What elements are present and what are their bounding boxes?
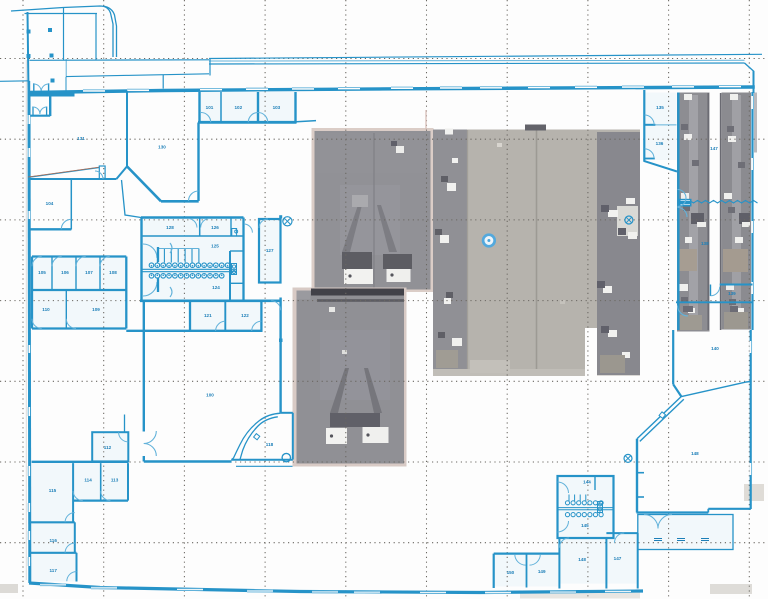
svg-text:136: 136 — [656, 141, 664, 146]
svg-text:122: 122 — [241, 313, 249, 318]
svg-text:105: 105 — [38, 270, 46, 275]
svg-text:147: 147 — [710, 146, 718, 151]
svg-text:106: 106 — [61, 270, 69, 275]
svg-text:150: 150 — [507, 570, 515, 575]
svg-text:148: 148 — [691, 451, 699, 456]
svg-text:104: 104 — [46, 201, 54, 206]
svg-text:144: 144 — [583, 480, 591, 485]
svg-text:147: 147 — [614, 556, 622, 561]
svg-text:118: 118 — [266, 442, 274, 447]
svg-text:112: 112 — [104, 445, 112, 450]
svg-text:148: 148 — [578, 557, 586, 562]
svg-text:108: 108 — [109, 270, 117, 275]
svg-text:125: 125 — [211, 244, 219, 249]
svg-text:140: 140 — [711, 346, 719, 351]
svg-text:127: 127 — [266, 248, 274, 253]
svg-text:110: 110 — [42, 307, 50, 312]
svg-text:126: 126 — [211, 225, 219, 230]
svg-text:135: 135 — [656, 105, 664, 110]
svg-text:131: 131 — [77, 136, 85, 141]
svg-text:121: 121 — [204, 313, 212, 318]
svg-text:107: 107 — [85, 270, 93, 275]
svg-text:130: 130 — [158, 145, 166, 150]
svg-text:114: 114 — [84, 478, 92, 483]
svg-text:116: 116 — [49, 538, 57, 543]
svg-text:109: 109 — [92, 307, 100, 312]
svg-text:149: 149 — [538, 569, 546, 574]
svg-text:100: 100 — [206, 393, 214, 398]
svg-text:139: 139 — [728, 291, 736, 296]
svg-text:138: 138 — [701, 241, 709, 246]
svg-text:113: 113 — [111, 478, 119, 483]
svg-text:101: 101 — [206, 105, 214, 110]
svg-text:102: 102 — [234, 105, 242, 110]
svg-text:103: 103 — [273, 105, 281, 110]
svg-text:145: 145 — [581, 523, 589, 528]
svg-text:117: 117 — [49, 568, 57, 573]
svg-text:128: 128 — [166, 225, 174, 230]
svg-text:115: 115 — [49, 488, 57, 493]
svg-text:124: 124 — [212, 285, 220, 290]
